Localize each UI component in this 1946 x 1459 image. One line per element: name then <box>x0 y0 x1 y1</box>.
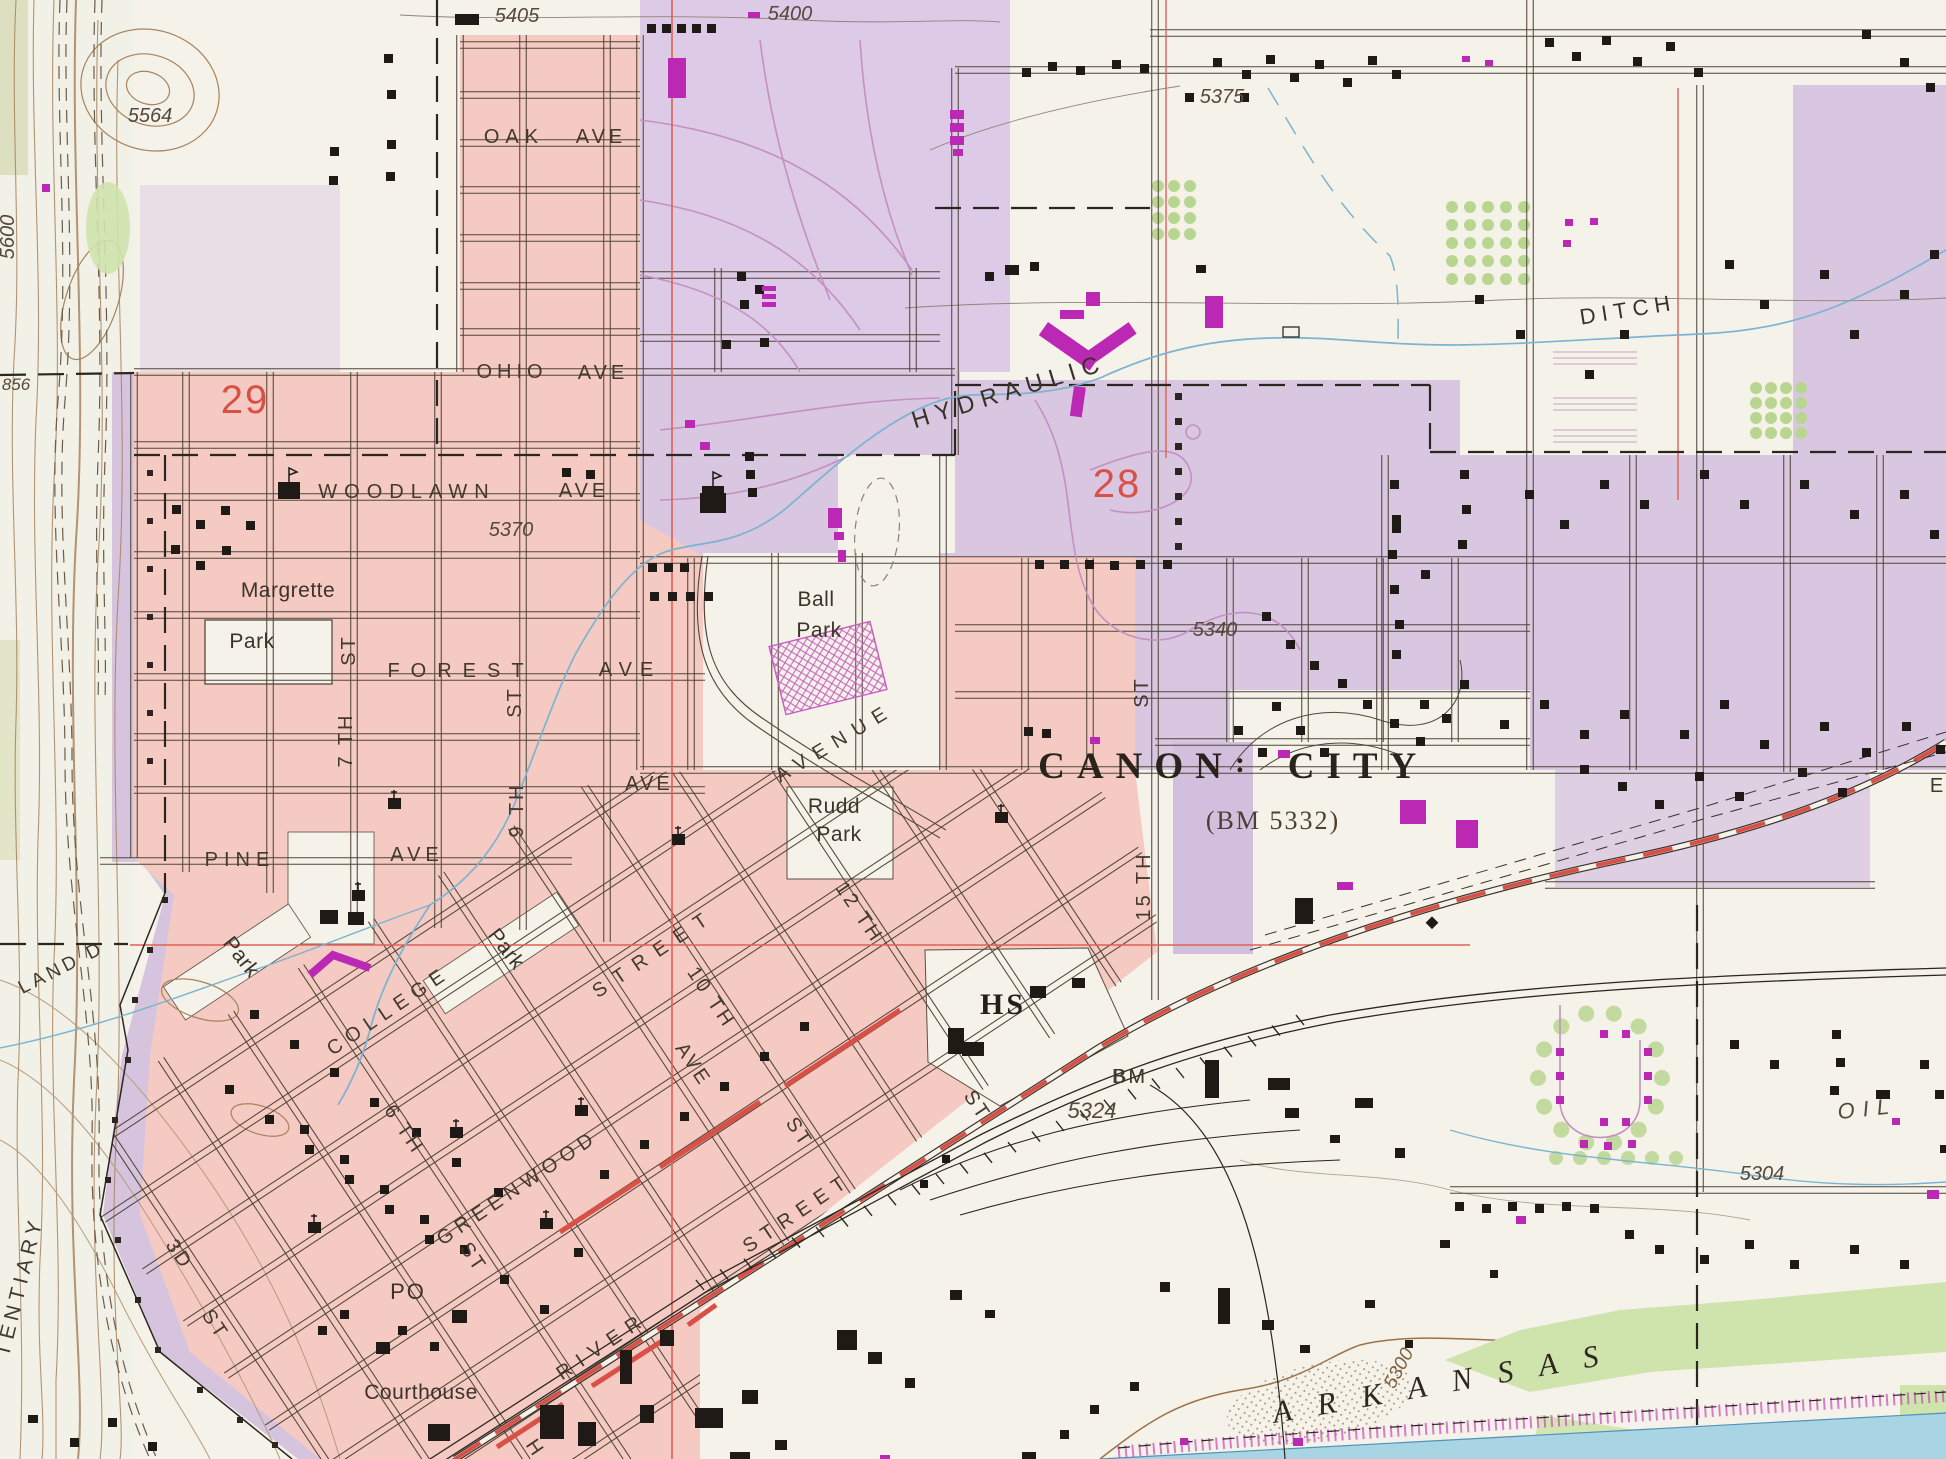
map-label-ave-19: AVE <box>559 480 610 502</box>
map-label--bm-5332--63: (BM 5332) <box>1206 806 1340 835</box>
map-label-ave-17: AVE <box>578 362 629 384</box>
map-label-ohio-16: OHIO <box>476 361 547 383</box>
topo-map-canvas[interactable]: 540554005564560085653755370534053045324B… <box>0 0 1946 1459</box>
map-label-po-58: PO <box>390 1279 426 1304</box>
map-label-st-30: ST <box>1131 676 1153 708</box>
map-label-courthouse-59: Courthouse <box>364 1381 478 1404</box>
map-label-margrette-50: Margrette <box>241 579 335 602</box>
map-label-5304-8: 5304 <box>1740 1163 1785 1185</box>
map-label-oak-14: OAK <box>484 126 544 148</box>
map-label-856-4: 856 <box>2 375 31 394</box>
map-label-9-th-27: 9 TH <box>506 783 528 838</box>
map-label-canon-60: CANON <box>1038 746 1234 787</box>
map-label-28-13: 28 <box>1093 462 1142 506</box>
map-label-woodlawn-18: WOODLAWN <box>318 481 495 503</box>
map-label-pine-22: PINE <box>205 849 276 871</box>
map-label-park-53: Park <box>796 619 841 642</box>
map-label-5340-7: 5340 <box>1193 619 1238 641</box>
map-label-ave-24: AVE <box>625 773 673 795</box>
map-label-ave-15: AVE <box>576 126 627 148</box>
map-label-5375-5: 5375 <box>1200 86 1245 108</box>
map-label-ave-23: AVE <box>390 844 444 866</box>
map-label-city-62: CITY <box>1288 746 1429 787</box>
map-label-forest-20: FOREST <box>387 660 534 682</box>
map-label-bm-65: BM <box>1112 1066 1148 1088</box>
map-label-ave-21: AVE <box>599 659 662 681</box>
map-label-5564-2: 5564 <box>128 105 173 127</box>
map-label-5370-6: 5370 <box>489 519 534 541</box>
map-label-5405-0: 5405 <box>495 5 540 27</box>
map-label-rudd-54: Rudd <box>808 795 860 818</box>
map-label-hs-64: HS <box>980 988 1026 1021</box>
map-label-7-th-25: 7 TH <box>335 713 357 768</box>
map-label-st-28: ST <box>504 686 526 718</box>
map-label-park-55: Park <box>816 823 861 846</box>
map-label-5600-3: 5600 <box>0 215 19 260</box>
map-label-5324-9: 5324 <box>1068 1098 1117 1123</box>
map-label-ball-52: Ball <box>797 588 834 611</box>
map-label-15-th-29: 15 TH <box>1133 851 1155 920</box>
map-label-e-49: E <box>1930 775 1946 797</box>
map-label-park-51: Park <box>229 630 274 653</box>
map-label-5400-1: 5400 <box>768 3 813 25</box>
map-label-st-26: ST <box>338 634 360 666</box>
map-label---61: : <box>1235 746 1257 779</box>
map-label-29-12: 29 <box>221 378 270 422</box>
topo-map-scan: 540554005564560085653755370534053045324B… <box>0 0 1946 1459</box>
